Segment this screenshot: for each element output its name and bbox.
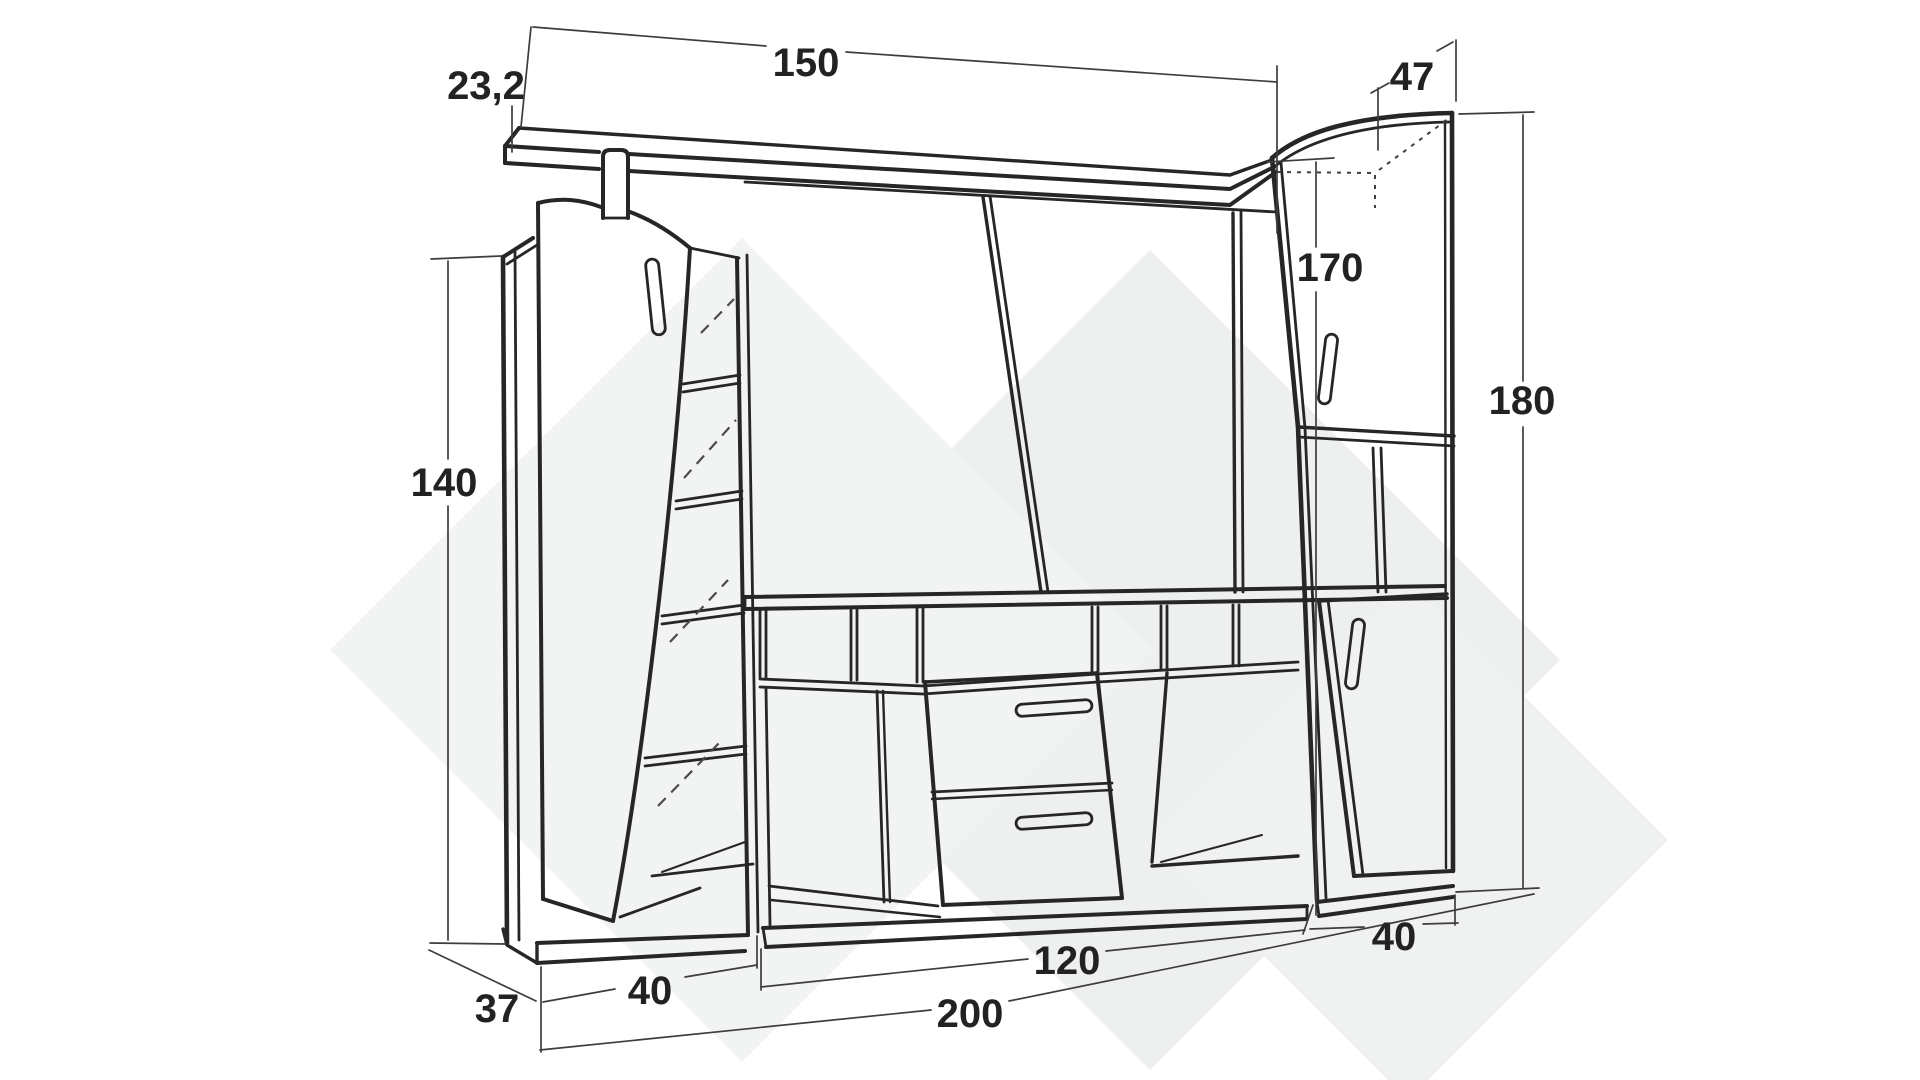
dim-label-total-width: 200 <box>937 992 1004 1036</box>
furniture-dimension-diagram: 23,2 150 47 170 180 140 37 40 120 40 200 <box>0 0 1920 1080</box>
dim-label-right-cabinet-width: 40 <box>1372 915 1417 959</box>
dim-label-left-cabinet-width: 40 <box>628 969 673 1013</box>
dim-label-center-section-width: 120 <box>1034 939 1101 983</box>
left-cabinet-side <box>503 257 507 943</box>
dim-label-shelf-overhang: 23,2 <box>447 64 525 108</box>
shelf-support-post <box>603 150 628 218</box>
hidden-edge-lines <box>1277 119 1448 208</box>
watermark <box>330 238 1668 1080</box>
dim-label-left-cabinet-depth: 37 <box>475 987 520 1031</box>
dim-label-right-section-height: 170 <box>1297 246 1364 290</box>
upper-door-handle <box>1318 334 1338 405</box>
dim-label-shelf-length: 150 <box>773 41 840 85</box>
diagram-canvas: 23,2 150 47 170 180 140 37 40 120 40 200 <box>0 0 1920 1080</box>
dim-label-left-cabinet-height: 140 <box>411 461 478 505</box>
top-shelf <box>505 128 1276 205</box>
dim-label-total-height: 180 <box>1489 379 1556 423</box>
dim-label-right-cabinet-depth: 47 <box>1390 55 1435 99</box>
